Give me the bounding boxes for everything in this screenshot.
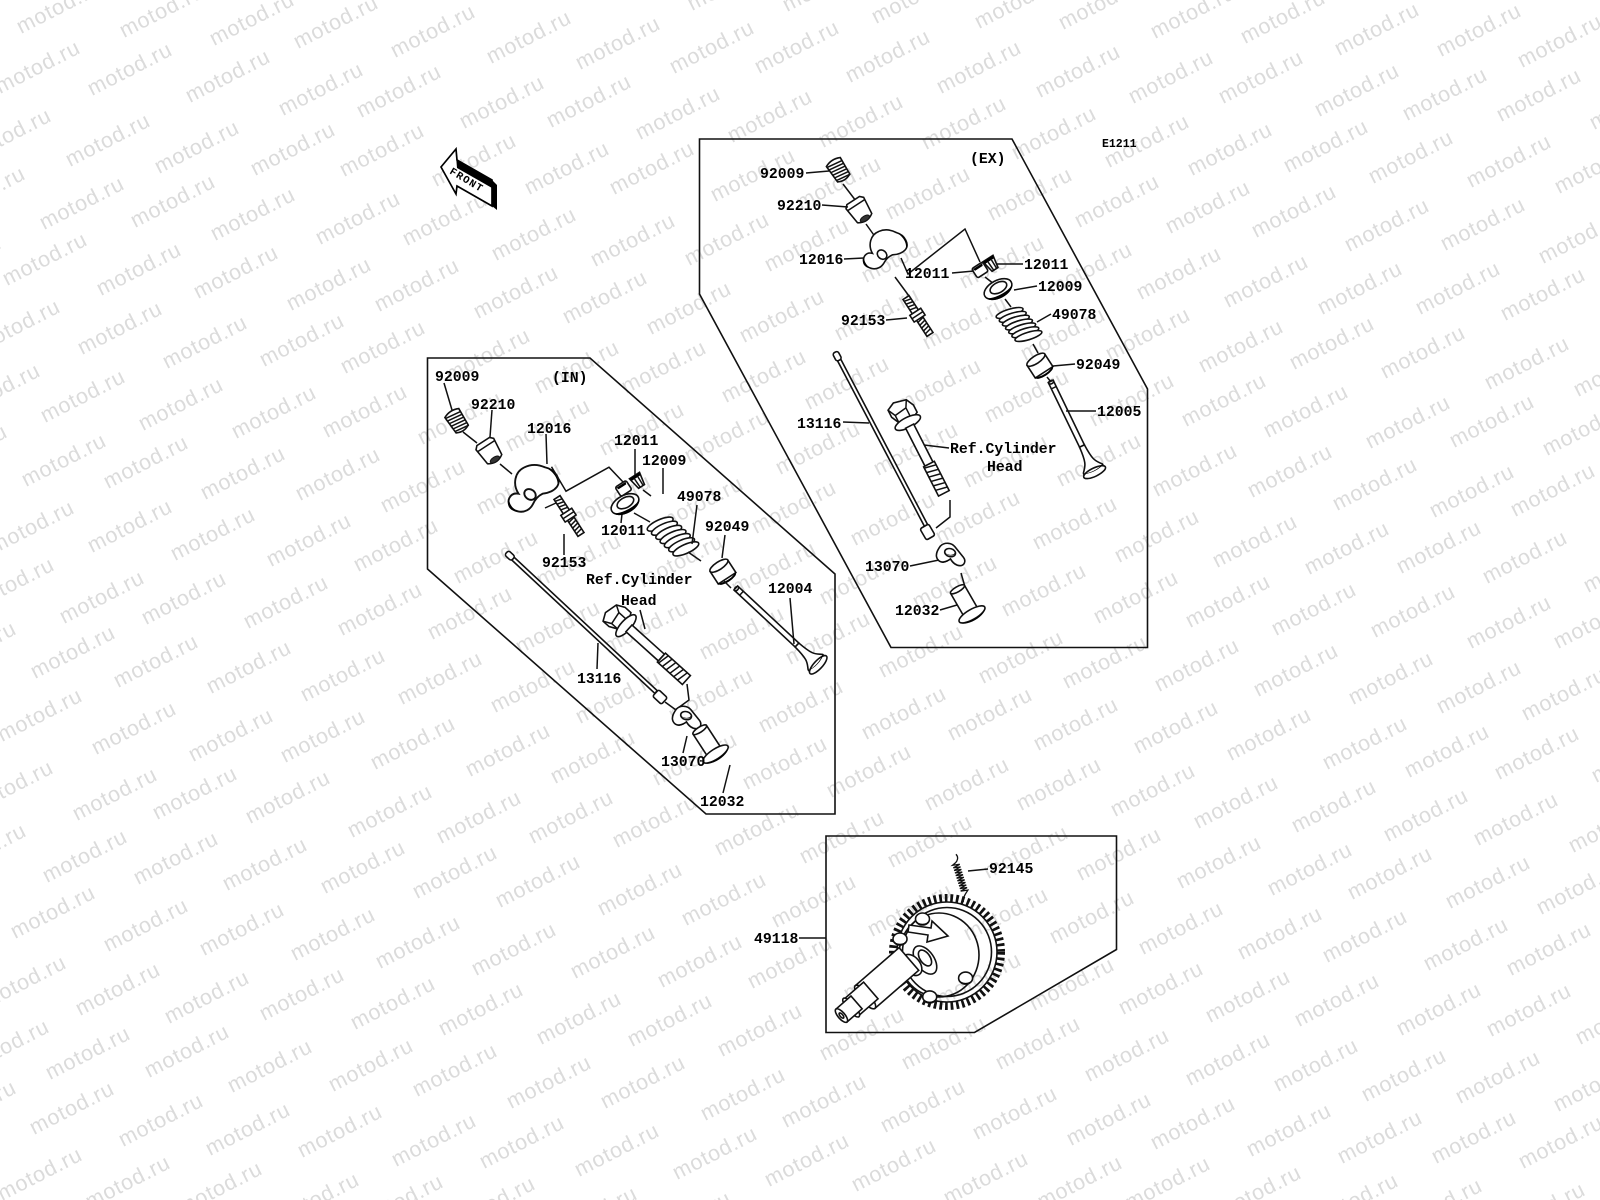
svg-text:motod.ru: motod.ru: [1425, 459, 1518, 522]
svg-text:motod.ru: motod.ru: [918, 291, 1011, 354]
svg-text:motod.ru: motod.ru: [608, 789, 701, 852]
svg-text:motod.ru: motod.ru: [1025, 952, 1118, 1015]
svg-text:motod.ru: motod.ru: [1441, 850, 1534, 913]
svg-text:motod.ru: motod.ru: [815, 546, 908, 609]
svg-text:92009: 92009: [760, 167, 804, 183]
svg-text:motod.ru: motod.ru: [1411, 256, 1504, 319]
svg-text:motod.ru: motod.ru: [482, 5, 575, 68]
svg-text:motod.ru: motod.ru: [99, 430, 192, 493]
svg-text:motod.ru: motod.ru: [548, 1181, 641, 1200]
svg-text:motod.ru: motod.ru: [1172, 830, 1265, 893]
svg-text:motod.ru: motod.ru: [227, 380, 320, 443]
svg-text:49078: 49078: [1052, 308, 1097, 324]
svg-text:motod.ru: motod.ru: [1310, 58, 1403, 121]
svg-text:motod.ru: motod.ru: [959, 882, 1052, 945]
svg-text:motod.ru: motod.ru: [586, 208, 679, 271]
svg-text:motod.ru: motod.ru: [291, 442, 384, 505]
svg-text:motod.ru: motod.ru: [1344, 646, 1437, 709]
svg-text:motod.ru: motod.ru: [6, 880, 99, 943]
svg-text:motod.ru: motod.ru: [1148, 438, 1241, 501]
svg-text:motod.ru: motod.ru: [282, 252, 375, 315]
svg-text:Head: Head: [987, 460, 1023, 476]
svg-text:motod.ru: motod.ru: [87, 696, 180, 759]
svg-text:motod.ru: motod.ru: [1208, 509, 1301, 572]
svg-text:motod.ru: motod.ru: [1330, 0, 1423, 60]
svg-text:motod.ru: motod.ru: [524, 785, 617, 848]
svg-text:motod.ru: motod.ru: [881, 161, 974, 224]
svg-text:motod.ru: motod.ru: [680, 207, 773, 270]
svg-text:motod.ru: motod.ru: [1012, 752, 1105, 815]
svg-text:12011: 12011: [905, 267, 950, 283]
svg-text:motod.ru: motod.ru: [1328, 452, 1421, 515]
svg-text:motod.ru: motod.ru: [570, 1118, 663, 1181]
svg-text:motod.ru: motod.ru: [92, 237, 185, 300]
svg-text:motod.ru: motod.ru: [1161, 175, 1254, 238]
svg-text:motod.ru: motod.ru: [25, 1076, 118, 1139]
svg-text:motod.ru: motod.ru: [36, 364, 129, 427]
svg-text:motod.ru: motod.ru: [109, 629, 202, 692]
svg-text:motod.ru: motod.ru: [318, 379, 411, 442]
svg-text:motod.ru: motod.ru: [1247, 179, 1340, 242]
svg-text:motod.ru: motod.ru: [17, 428, 110, 491]
svg-text:motod.ru: motod.ru: [41, 1021, 134, 1084]
svg-text:motod.ru: motod.ru: [467, 917, 560, 980]
svg-text:motod.ru: motod.ru: [642, 276, 735, 339]
svg-text:motod.ru: motod.ru: [1214, 45, 1307, 108]
svg-text:motod.ru: motod.ru: [311, 186, 404, 249]
svg-text:13070: 13070: [661, 755, 706, 771]
svg-text:92153: 92153: [841, 314, 886, 330]
svg-text:motod.ru: motod.ru: [1579, 534, 1600, 597]
svg-text:motod.ru: motod.ru: [1134, 896, 1227, 959]
svg-text:motod.ru: motod.ru: [1398, 62, 1491, 125]
svg-text:motod.ru: motod.ru: [446, 1171, 539, 1200]
svg-text:motod.ru: motod.ru: [218, 832, 311, 895]
svg-text:motod.ru: motod.ru: [1595, 272, 1600, 335]
svg-text:motod.ru: motod.ru: [781, 606, 874, 669]
svg-text:motod.ru: motod.ru: [455, 70, 548, 133]
svg-text:motod.ru: motod.ru: [71, 957, 164, 1020]
svg-text:motod.ru: motod.ru: [370, 253, 463, 316]
svg-text:motod.ru: motod.ru: [434, 977, 527, 1040]
svg-text:motod.ru: motod.ru: [239, 570, 332, 633]
svg-text:motod.ru: motod.ru: [591, 0, 684, 3]
svg-text:motod.ru: motod.ru: [1543, 0, 1600, 2]
svg-text:motod.ru: motod.ru: [38, 824, 131, 887]
svg-text:motod.ru: motod.ru: [511, 595, 604, 658]
svg-text:motod.ru: motod.ru: [0, 950, 70, 1013]
svg-text:92153: 92153: [542, 556, 587, 572]
svg-text:motod.ru: motod.ru: [1212, 1160, 1305, 1200]
svg-text:13116: 13116: [577, 672, 622, 688]
svg-text:motod.ru: motod.ru: [970, 0, 1063, 33]
svg-text:motod.ru: motod.ru: [1432, 0, 1525, 61]
svg-text:motod.ru: motod.ru: [777, 1069, 870, 1132]
svg-text:motod.ru: motod.ru: [1571, 986, 1600, 1049]
svg-text:motod.ru: motod.ru: [343, 779, 436, 842]
svg-text:49078: 49078: [677, 490, 722, 506]
svg-text:motod.ru: motod.ru: [1357, 1043, 1450, 1106]
svg-text:motod.ru: motod.ru: [0, 495, 78, 558]
svg-text:motod.ru: motod.ru: [1469, 787, 1562, 850]
svg-text:motod.ru: motod.ru: [1062, 1087, 1155, 1150]
svg-text:motod.ru: motod.ru: [346, 971, 439, 1034]
svg-text:motod.ru: motod.ru: [1290, 968, 1383, 1031]
svg-text:motod.ru: motod.ru: [0, 818, 30, 881]
svg-text:motod.ru: motod.ru: [1194, 314, 1287, 377]
svg-text:motod.ru: motod.ru: [1129, 695, 1222, 758]
svg-text:motod.ru: motod.ru: [1462, 129, 1555, 192]
svg-text:motod.ru: motod.ru: [1318, 711, 1411, 774]
svg-text:13070: 13070: [865, 560, 910, 576]
svg-text:motod.ru: motod.ru: [184, 703, 277, 766]
svg-text:motod.ru: motod.ru: [206, 182, 299, 245]
svg-text:motod.ru: motod.ru: [1089, 565, 1182, 628]
svg-text:motod.ru: motod.ru: [1181, 1027, 1274, 1090]
svg-text:motod.ru: motod.ru: [1287, 774, 1380, 837]
svg-text:motod.ru: motod.ru: [491, 849, 584, 912]
svg-text:motod.ru: motod.ru: [408, 1038, 501, 1101]
svg-text:motod.ru: motod.ru: [316, 835, 409, 898]
svg-text:motod.ru: motod.ru: [0, 683, 86, 746]
svg-text:Ref.Cylinder: Ref.Cylinder: [950, 442, 1057, 458]
svg-text:motod.ru: motod.ru: [1492, 63, 1585, 126]
svg-text:motod.ru: motod.ru: [1446, 0, 1539, 1]
svg-text:motod.ru: motod.ru: [1379, 783, 1472, 846]
svg-text:motod.ru: motod.ru: [1445, 389, 1538, 452]
svg-text:motod.ru: motod.ru: [968, 1081, 1061, 1144]
svg-text:motod.ru: motod.ru: [974, 625, 1067, 688]
svg-text:motod.ru: motod.ru: [1313, 256, 1406, 319]
svg-text:motod.ru: motod.ru: [1242, 1098, 1335, 1161]
svg-text:motod.ru: motod.ru: [1080, 1023, 1173, 1086]
svg-text:motod.ru: motod.ru: [371, 910, 464, 973]
svg-text:92049: 92049: [705, 520, 749, 536]
svg-text:motod.ru: motod.ru: [1132, 241, 1225, 304]
svg-text:motod.ru: motod.ru: [1333, 1105, 1426, 1168]
svg-text:motod.ru: motod.ru: [876, 1074, 969, 1137]
svg-text:motod.ru: motod.ru: [530, 335, 623, 398]
svg-text:motod.ru: motod.ru: [1269, 1033, 1362, 1096]
svg-text:92049: 92049: [1076, 358, 1120, 374]
svg-text:motod.ru: motod.ru: [695, 601, 788, 664]
svg-text:motod.ru: motod.ru: [605, 136, 698, 199]
svg-text:12009: 12009: [1038, 280, 1082, 296]
svg-text:motod.ru: motod.ru: [1318, 904, 1411, 967]
svg-text:motod.ru: motod.ru: [653, 929, 746, 992]
svg-text:motod.ru: motod.ru: [487, 202, 580, 265]
svg-text:motod.ru: motod.ru: [55, 565, 148, 628]
svg-text:motod.ru: motod.ru: [997, 558, 1090, 621]
svg-text:motod.ru: motod.ru: [1052, 428, 1145, 491]
svg-text:motod.ru: motod.ru: [939, 1146, 1032, 1200]
svg-text:motod.ru: motod.ru: [883, 809, 976, 872]
svg-text:motod.ru: motod.ru: [274, 57, 367, 120]
svg-text:motod.ru: motod.ru: [83, 494, 176, 557]
svg-text:motod.ru: motod.ru: [148, 761, 241, 824]
svg-text:motod.ru: motod.ru: [1070, 169, 1163, 232]
svg-text:motod.ru: motod.ru: [1201, 964, 1294, 1027]
svg-text:motod.ru: motod.ru: [1340, 193, 1433, 256]
svg-text:motod.ru: motod.ru: [276, 704, 369, 767]
svg-text:motod.ru: motod.ru: [1427, 1105, 1520, 1168]
svg-text:motod.ru: motod.ru: [754, 674, 847, 737]
svg-text:12016: 12016: [799, 253, 844, 269]
svg-text:motod.ru: motod.ru: [324, 1033, 417, 1096]
svg-text:motod.ru: motod.ru: [1181, 569, 1274, 632]
svg-text:motod.ru: motod.ru: [767, 869, 860, 932]
svg-text:motod.ru: motod.ru: [68, 762, 161, 825]
svg-text:motod.ru: motod.ru: [0, 358, 44, 421]
svg-text:92009: 92009: [435, 370, 479, 386]
svg-text:motod.ru: motod.ru: [1121, 1151, 1214, 1200]
svg-text:motod.ru: motod.ru: [1028, 491, 1121, 554]
svg-text:motod.ru: motod.ru: [778, 0, 871, 16]
svg-text:motod.ru: motod.ru: [352, 59, 445, 122]
svg-text:motod.ru: motod.ru: [1549, 590, 1600, 653]
svg-text:motod.ru: motod.ru: [475, 1110, 568, 1173]
svg-text:motod.ru: motod.ru: [546, 725, 639, 788]
svg-text:motod.ru: motod.ru: [1564, 794, 1600, 857]
svg-text:motod.ru: motod.ru: [520, 136, 613, 199]
svg-text:motod.ru: motod.ru: [205, 0, 298, 50]
svg-text:motod.ru: motod.ru: [270, 1167, 363, 1200]
svg-text:motod.ru: motod.ru: [99, 893, 192, 956]
svg-text:motod.ru: motod.ru: [532, 986, 625, 1049]
svg-text:motod.ru: motod.ru: [1534, 205, 1600, 268]
svg-text:motod.ru: motod.ru: [0, 35, 84, 98]
svg-text:motod.ru: motod.ru: [166, 502, 259, 565]
svg-text:motod.ru: motod.ru: [1114, 956, 1207, 1019]
svg-text:motod.ru: motod.ru: [201, 1097, 294, 1160]
svg-text:13116: 13116: [797, 417, 842, 433]
svg-text:92145: 92145: [989, 862, 1034, 878]
svg-text:motod.ru: motod.ru: [814, 89, 907, 152]
svg-text:motod.ru: motod.ru: [0, 876, 3, 939]
svg-text:motod.ru: motod.ru: [0, 103, 55, 166]
svg-text:12032: 12032: [700, 795, 745, 811]
svg-text:motod.ru: motod.ru: [1392, 977, 1485, 1040]
svg-text:motod.ru: motod.ru: [932, 35, 1025, 98]
svg-text:motod.ru: motod.ru: [1085, 368, 1178, 431]
svg-text:motod.ru: motod.ru: [1029, 692, 1122, 755]
svg-text:motod.ru: motod.ru: [696, 1062, 789, 1125]
svg-text:motod.ru: motod.ru: [1177, 368, 1270, 431]
svg-text:motod.ru: motod.ru: [931, 485, 1024, 548]
svg-text:motod.ru: motod.ru: [897, 1011, 990, 1074]
svg-text:motod.ru: motod.ru: [750, 15, 843, 78]
svg-text:motod.ru: motod.ru: [1502, 917, 1595, 980]
svg-text:motod.ru: motod.ru: [1482, 978, 1575, 1041]
svg-text:motod.ru: motod.ru: [1532, 856, 1600, 919]
svg-text:motod.ru: motod.ru: [841, 24, 934, 87]
svg-text:motod.ru: motod.ru: [822, 739, 915, 802]
svg-text:92210: 92210: [777, 199, 822, 215]
svg-text:motod.ru: motod.ru: [393, 646, 486, 709]
svg-text:motod.ru: motod.ru: [1392, 515, 1485, 578]
svg-text:12011: 12011: [614, 434, 659, 450]
svg-text:motod.ru: motod.ru: [1150, 633, 1243, 696]
svg-text:motod.ru: motod.ru: [26, 620, 119, 683]
svg-text:Ref.Cylinder: Ref.Cylinder: [586, 573, 693, 589]
svg-text:motod.ru: motod.ru: [0, 294, 64, 357]
svg-text:motod.ru: motod.ru: [196, 441, 289, 504]
svg-text:motod.ru: motod.ru: [1343, 841, 1436, 904]
svg-text:motod.ru: motod.ru: [680, 404, 773, 467]
svg-text:motod.ru: motod.ru: [566, 920, 659, 983]
svg-text:motod.ru: motod.ru: [1393, 1173, 1486, 1200]
svg-text:motod.ru: motod.ru: [1233, 901, 1326, 964]
svg-text:motod.ru: motod.ru: [1451, 1045, 1544, 1108]
svg-text:92210: 92210: [471, 398, 516, 414]
svg-text:12016: 12016: [527, 422, 572, 438]
svg-text:motod.ru: motod.ru: [677, 867, 770, 930]
svg-text:motod.ru: motod.ru: [150, 115, 243, 178]
svg-text:motod.ru: motod.ru: [1432, 655, 1525, 718]
svg-text:motod.ru: motod.ru: [336, 315, 429, 378]
svg-text:motod.ru: motod.ru: [723, 84, 816, 147]
svg-text:motod.ru: motod.ru: [432, 785, 525, 848]
svg-text:motod.ru: motod.ru: [449, 525, 542, 588]
svg-text:motod.ru: motod.ru: [0, 161, 29, 224]
svg-text:motod.ru: motod.ru: [158, 310, 251, 373]
svg-text:motod.ru: motod.ru: [461, 718, 554, 781]
svg-text:motod.ru: motod.ru: [134, 372, 227, 435]
svg-text:motod.ru: motod.ru: [1513, 9, 1600, 72]
svg-text:motod.ru: motod.ru: [668, 1121, 761, 1184]
svg-text:motod.ru: motod.ru: [631, 81, 724, 144]
svg-text:motod.ru: motod.ru: [289, 0, 382, 53]
svg-text:motod.ru: motod.ru: [189, 240, 282, 303]
svg-text:motod.ru: motod.ru: [665, 15, 758, 78]
svg-text:motod.ru: motod.ru: [558, 265, 651, 328]
svg-text:motod.ru: motod.ru: [847, 1133, 940, 1196]
svg-text:motod.ru: motod.ru: [1496, 1177, 1589, 1200]
svg-text:motod.ru: motod.ru: [293, 1099, 386, 1162]
svg-text:motod.ru: motod.ru: [917, 91, 1010, 154]
svg-text:12032: 12032: [895, 604, 940, 620]
svg-text:motod.ru: motod.ru: [1110, 504, 1203, 567]
svg-text:motod.ru: motod.ru: [1222, 702, 1315, 765]
svg-text:motod.ru: motod.ru: [0, 616, 20, 679]
svg-text:motod.ru: motod.ru: [1480, 331, 1573, 394]
svg-text:motod.ru: motod.ru: [857, 681, 950, 744]
svg-text:motod.ru: motod.ru: [1146, 1091, 1239, 1154]
svg-text:motod.ru: motod.ru: [61, 108, 154, 171]
svg-text:motod.ru: motod.ru: [542, 69, 635, 132]
svg-text:motod.ru: motod.ru: [920, 752, 1013, 815]
svg-text:motod.ru: motod.ru: [1462, 590, 1555, 653]
svg-text:motod.ru: motod.ru: [35, 171, 128, 234]
svg-text:motod.ru: motod.ru: [1490, 721, 1583, 784]
svg-text:motod.ru: motod.ru: [286, 902, 379, 965]
svg-text:motod.ru: motod.ru: [1309, 1168, 1402, 1200]
svg-text:motod.ru: motod.ru: [1259, 379, 1352, 442]
svg-text:Head: Head: [621, 594, 657, 610]
svg-text:motod.ru: motod.ru: [1478, 525, 1571, 588]
svg-text:motod.ru: motod.ru: [408, 840, 501, 903]
svg-text:motod.ru: motod.ru: [129, 826, 222, 889]
svg-text:motod.ru: motod.ru: [160, 965, 253, 1028]
svg-text:motod.ru: motod.ru: [1146, 0, 1239, 43]
svg-text:motod.ru: motod.ru: [114, 1088, 207, 1151]
svg-text:motod.ru: motod.ru: [126, 169, 219, 232]
svg-text:motod.ru: motod.ru: [1364, 125, 1457, 188]
svg-text:motod.ru: motod.ru: [1419, 912, 1512, 975]
svg-text:(IN): (IN): [552, 371, 588, 387]
svg-text:motod.ru: motod.ru: [173, 1156, 266, 1200]
svg-text:motod.ru: motod.ru: [137, 566, 230, 629]
svg-text:motod.ru: motod.ru: [1243, 439, 1336, 502]
svg-text:motod.ru: motod.ru: [115, 0, 208, 42]
svg-text:49118: 49118: [754, 932, 799, 948]
svg-text:motod.ru: motod.ru: [760, 1128, 853, 1191]
svg-text:motod.ru: motod.ru: [642, 1186, 735, 1200]
svg-text:(EX): (EX): [970, 152, 1006, 168]
svg-text:motod.ru: motod.ru: [1361, 390, 1454, 453]
svg-text:motod.ru: motod.ru: [1587, 724, 1600, 787]
svg-text:motod.ru: motod.ru: [1072, 822, 1165, 885]
svg-text:motod.ru: motod.ru: [943, 682, 1036, 745]
svg-text:motod.ru: motod.ru: [867, 0, 960, 28]
svg-text:motod.ru: motod.ru: [181, 44, 274, 107]
svg-text:motod.ru: motod.ru: [683, 0, 776, 15]
svg-text:motod.ru: motod.ru: [354, 1169, 447, 1200]
svg-text:motod.ru: motod.ru: [1549, 1053, 1600, 1116]
svg-text:motod.ru: motod.ru: [1236, 0, 1329, 48]
svg-text:motod.ru: motod.ru: [0, 227, 91, 290]
svg-text:motod.ru: motod.ru: [1058, 630, 1151, 693]
svg-text:motod.ru: motod.ru: [596, 1050, 689, 1113]
svg-text:12005: 12005: [1097, 405, 1142, 421]
svg-text:motod.ru: motod.ru: [83, 37, 176, 100]
svg-text:motod.ru: motod.ru: [1219, 249, 1312, 312]
svg-text:motod.ru: motod.ru: [1106, 758, 1199, 821]
svg-text:motod.ru: motod.ru: [1436, 192, 1529, 255]
svg-text:12011: 12011: [1024, 258, 1069, 274]
svg-text:motod.ru: motod.ru: [73, 296, 166, 359]
svg-text:motod.ru: motod.ru: [335, 118, 428, 181]
svg-text:motod.ru: motod.ru: [595, 397, 688, 460]
svg-text:motod.ru: motod.ru: [1550, 135, 1600, 198]
svg-text:motod.ru: motod.ru: [241, 765, 334, 828]
svg-text:12004: 12004: [768, 582, 813, 598]
svg-text:motod.ru: motod.ru: [1267, 577, 1360, 640]
svg-text:motod.ru: motod.ru: [874, 619, 967, 682]
svg-text:motod.ru: motod.ru: [195, 897, 288, 960]
svg-text:motod.ru: motod.ru: [1124, 45, 1217, 108]
svg-text:motod.ru: motod.ru: [800, 351, 893, 414]
svg-text:motod.ru: motod.ru: [991, 1011, 1084, 1074]
svg-text:motod.ru: motod.ru: [738, 731, 831, 794]
svg-text:motod.ru: motod.ru: [223, 1034, 316, 1097]
svg-text:motod.ru: motod.ru: [593, 857, 686, 920]
svg-text:motod.ru: motod.ru: [1376, 320, 1469, 383]
svg-text:motod.ru: motod.ru: [333, 577, 426, 640]
svg-text:motod.ru: motod.ru: [1300, 516, 1393, 579]
svg-text:motod.ru: motod.ru: [255, 308, 348, 371]
svg-text:12011: 12011: [601, 524, 646, 540]
svg-text:motod.ru: motod.ru: [246, 117, 339, 180]
svg-text:motod.ru: motod.ru: [1033, 1150, 1126, 1200]
svg-text:motod.ru: motod.ru: [735, 284, 828, 347]
svg-text:motod.ru: motod.ru: [81, 1150, 174, 1200]
svg-text:motod.ru: motod.ru: [387, 1108, 480, 1171]
svg-text:motod.ru: motod.ru: [262, 508, 355, 571]
svg-text:motod.ru: motod.ru: [623, 988, 716, 1051]
svg-text:motod.ru: motod.ru: [1183, 117, 1276, 180]
svg-text:motod.ru: motod.ru: [0, 755, 57, 818]
